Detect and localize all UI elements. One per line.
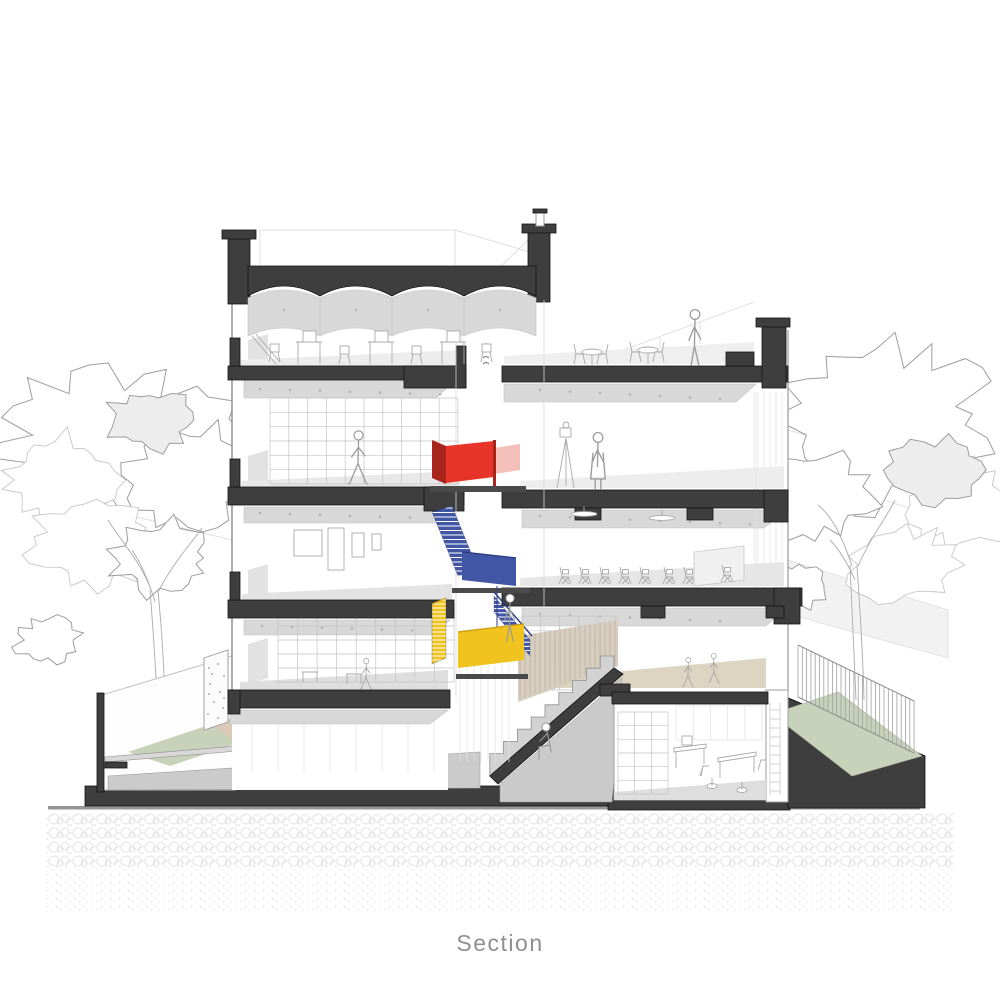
- ground-texture: [46, 806, 954, 914]
- drawing-caption: Section: [0, 930, 1000, 957]
- basement-office: [614, 702, 780, 800]
- architectural-section-sheet: Section: [0, 0, 1000, 1000]
- section-drawing: [0, 0, 1000, 1000]
- vaulted-roof: [248, 266, 536, 336]
